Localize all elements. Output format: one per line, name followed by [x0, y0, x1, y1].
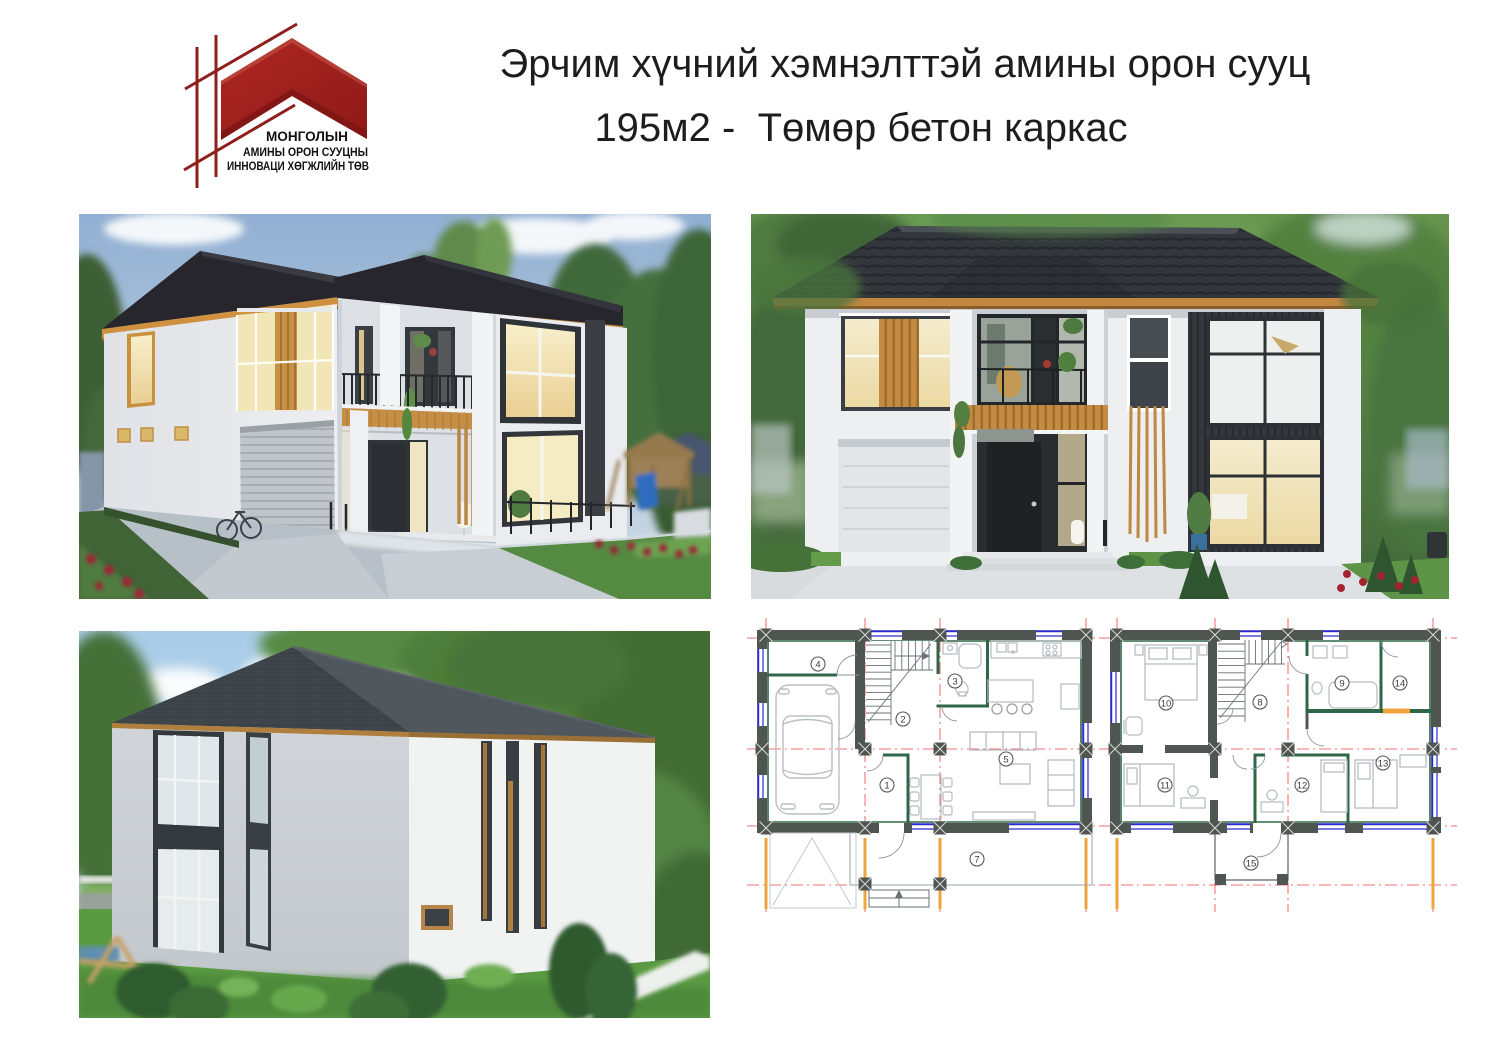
svg-text:15: 15: [1246, 858, 1257, 869]
svg-text:1: 1: [884, 780, 889, 791]
svg-text:3: 3: [952, 676, 957, 687]
svg-text:12: 12: [1297, 780, 1308, 791]
svg-text:4: 4: [815, 659, 820, 670]
svg-text:7: 7: [974, 854, 979, 865]
svg-text:10: 10: [1161, 698, 1172, 709]
svg-text:АМИНЫ ОРОН СУУЦНЫ: АМИНЫ ОРОН СУУЦНЫ: [243, 147, 368, 159]
svg-text:2: 2: [900, 714, 905, 725]
svg-text:13: 13: [1378, 758, 1389, 769]
svg-text:9: 9: [1339, 678, 1344, 689]
svg-text:МОНГОЛЫН: МОНГОЛЫН: [266, 128, 348, 144]
svg-text:ИННОВАЦИ ХӨГЖЛИЙН ТӨВ: ИННОВАЦИ ХӨГЖЛИЙН ТӨВ: [227, 160, 369, 173]
svg-text:5: 5: [1003, 754, 1008, 765]
svg-text:14: 14: [1395, 678, 1406, 689]
svg-text:8: 8: [1257, 697, 1262, 708]
svg-text:11: 11: [1160, 780, 1170, 791]
